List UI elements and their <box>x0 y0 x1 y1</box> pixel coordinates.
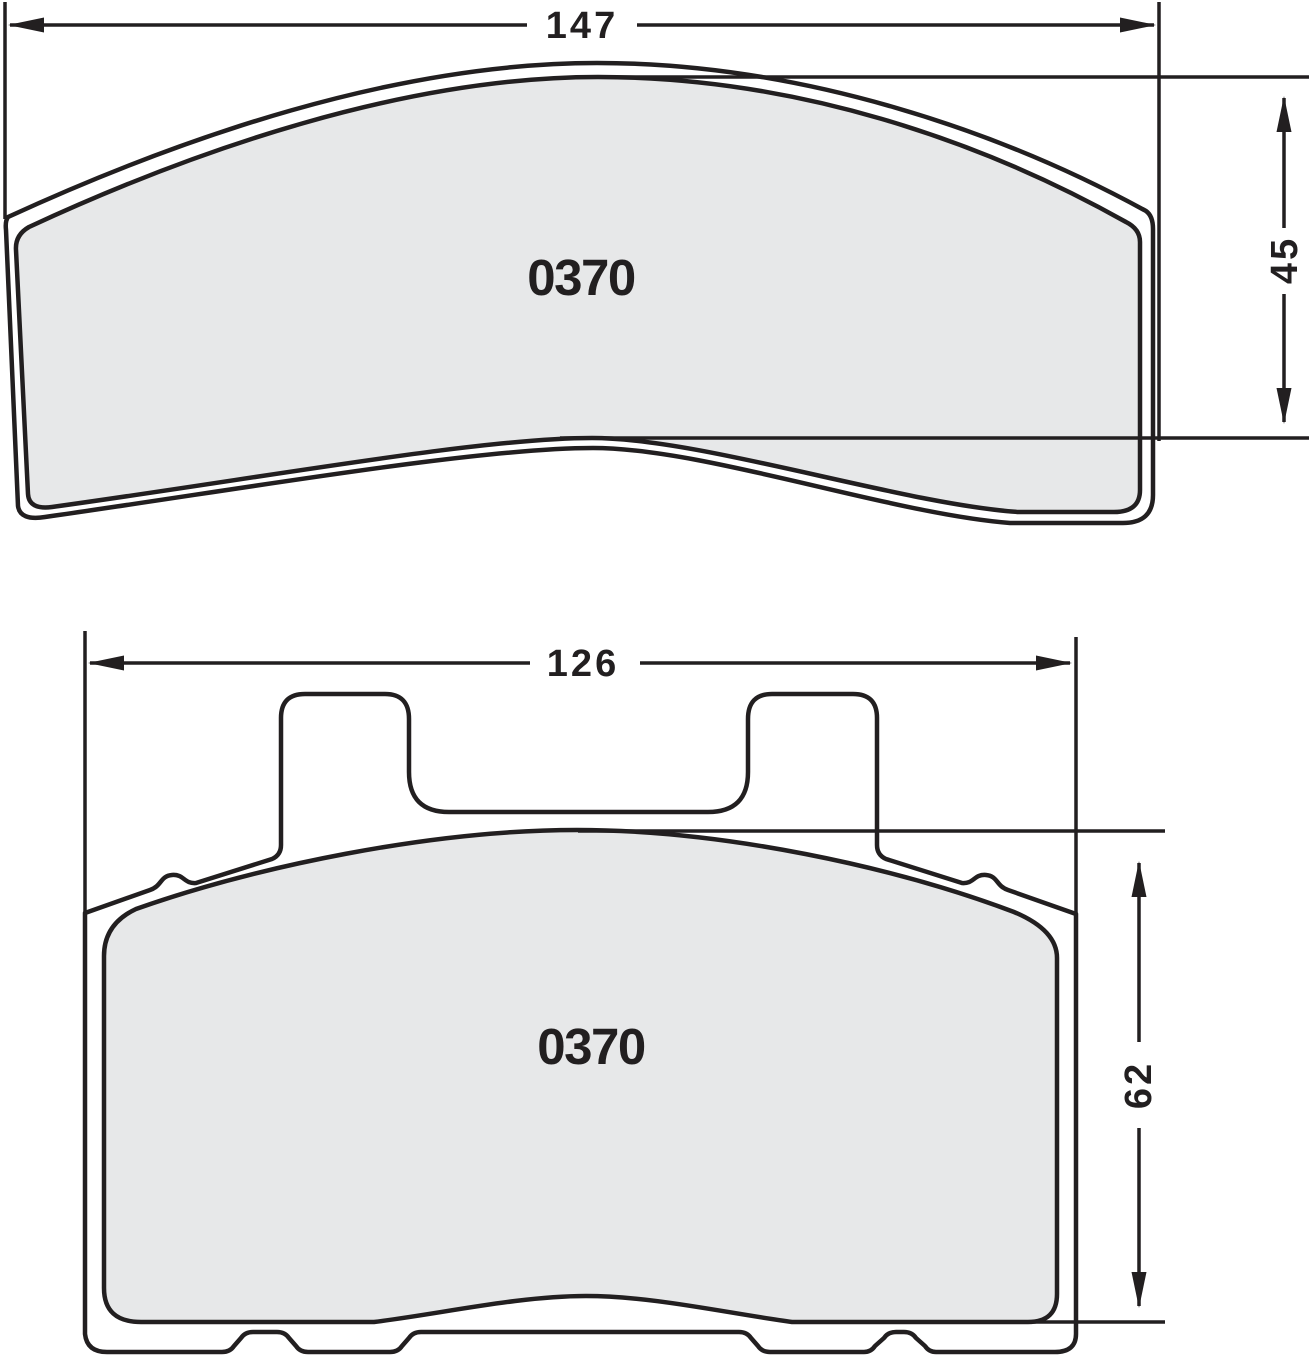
arrowhead-left-icon <box>88 656 124 671</box>
bottom-view-height-label: 62 <box>1118 1061 1160 1109</box>
bottom-view-width-label: 126 <box>547 643 619 685</box>
arrowhead-down-icon <box>1277 388 1292 424</box>
top-view-height-label: 45 <box>1264 236 1306 284</box>
top-view-part-number: 0370 <box>527 249 635 306</box>
technical-drawing-page: 147 45 0370 126 <box>0 0 1309 1359</box>
arrowhead-right-icon <box>1036 656 1072 671</box>
bottom-view-friction-material <box>104 830 1057 1322</box>
arrowhead-left-icon <box>8 18 44 33</box>
top-view-width-label: 147 <box>546 5 618 47</box>
top-view: 147 45 0370 <box>5 2 1309 523</box>
brake-pad-drawing: 147 45 0370 126 <box>0 0 1309 1359</box>
bottom-view-part-number: 0370 <box>537 1018 645 1075</box>
arrowhead-up-icon <box>1132 861 1147 897</box>
arrowhead-down-icon <box>1132 1272 1147 1308</box>
arrowhead-right-icon <box>1120 18 1156 33</box>
bottom-view: 126 62 0370 <box>85 631 1165 1352</box>
arrowhead-up-icon <box>1277 96 1292 132</box>
